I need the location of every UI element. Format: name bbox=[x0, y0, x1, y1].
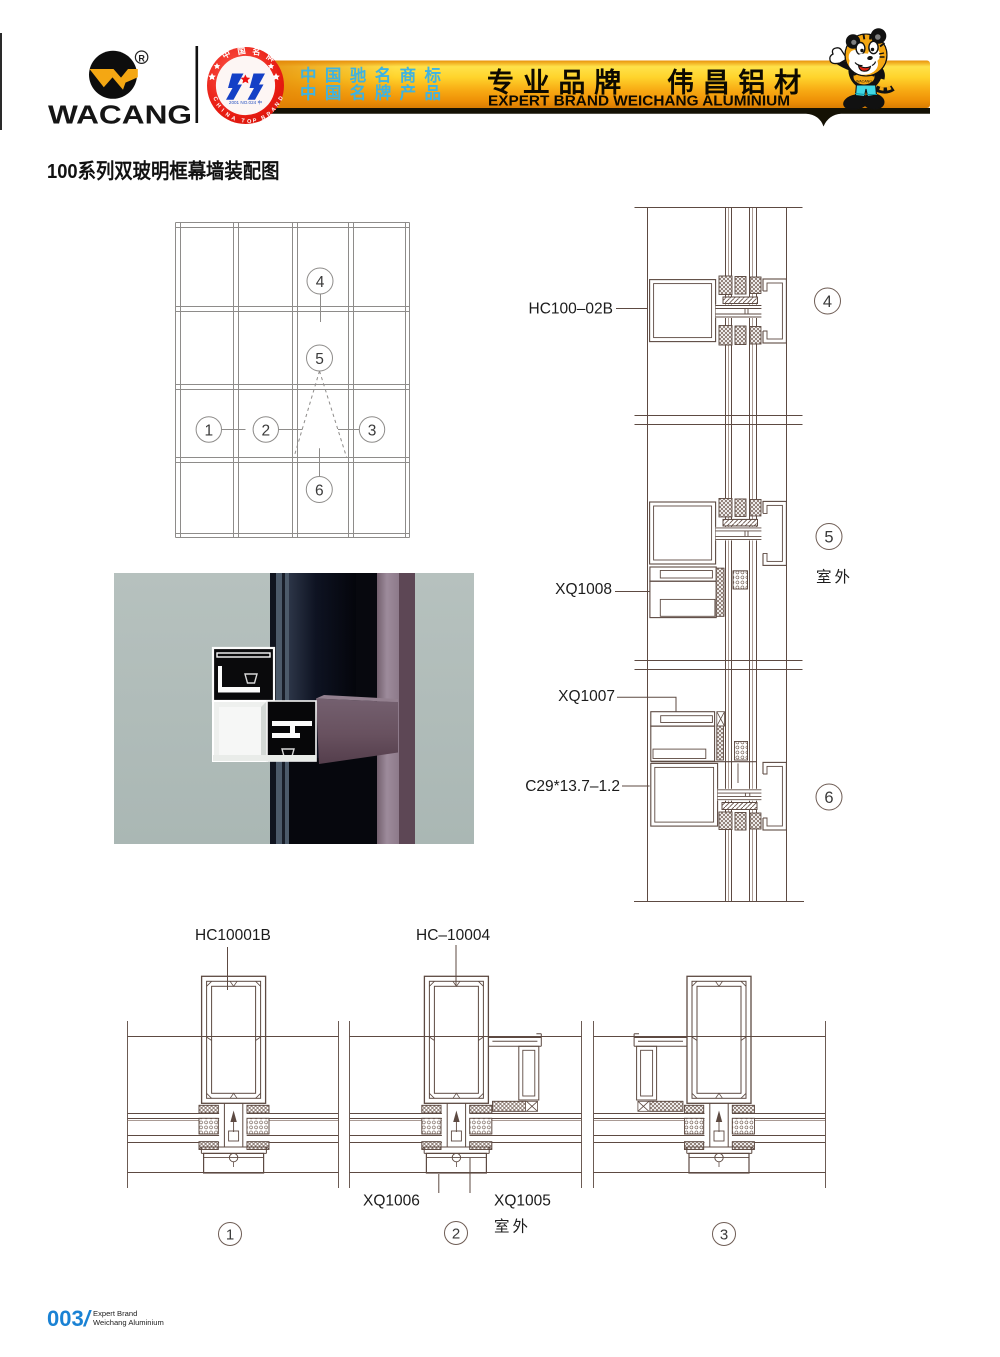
svg-text:HC100–02B: HC100–02B bbox=[529, 301, 613, 318]
svg-text:O: O bbox=[247, 119, 252, 125]
svg-text:室外: 室外 bbox=[816, 568, 853, 586]
svg-text:WACANG: WACANG bbox=[48, 102, 192, 130]
svg-text:6: 6 bbox=[824, 789, 833, 807]
svg-text:HC–10004: HC–10004 bbox=[416, 927, 490, 944]
svg-text:4: 4 bbox=[823, 293, 832, 311]
svg-text:C29*13.7–1.2: C29*13.7–1.2 bbox=[525, 778, 620, 795]
svg-text:国: 国 bbox=[237, 45, 247, 56]
svg-text:WACANG: WACANG bbox=[856, 80, 872, 84]
svg-text:2: 2 bbox=[452, 1226, 460, 1243]
svg-text:HC10001B: HC10001B bbox=[195, 927, 271, 944]
svg-text:1: 1 bbox=[226, 1227, 234, 1244]
svg-text:XQ1007: XQ1007 bbox=[558, 688, 615, 705]
svg-text:室外: 室外 bbox=[494, 1218, 531, 1236]
svg-text:XQ1006: XQ1006 bbox=[363, 1193, 420, 1210]
svg-text:6: 6 bbox=[315, 483, 324, 500]
svg-text:3: 3 bbox=[368, 423, 377, 440]
svg-text:中国名牌产品: 中国名牌产品 bbox=[300, 83, 449, 103]
svg-text:3: 3 bbox=[720, 1227, 728, 1244]
svg-text:1: 1 bbox=[204, 423, 213, 440]
svg-text:2: 2 bbox=[261, 423, 270, 440]
svg-text:5: 5 bbox=[315, 351, 324, 368]
svg-text:EXPERT BRAND WEICHANG ALUMINIU: EXPERT BRAND WEICHANG ALUMINIUM bbox=[488, 94, 790, 110]
svg-text:XQ1005: XQ1005 bbox=[494, 1193, 551, 1210]
svg-text:XQ1008: XQ1008 bbox=[555, 581, 612, 598]
svg-text:5: 5 bbox=[824, 529, 833, 547]
svg-text:中国驰名商标: 中国驰名商标 bbox=[300, 65, 449, 85]
svg-text:R: R bbox=[138, 53, 145, 63]
svg-text:4: 4 bbox=[316, 274, 325, 291]
svg-text:名: 名 bbox=[252, 46, 262, 57]
svg-text:2001 NO.024 中: 2001 NO.024 中 bbox=[229, 99, 263, 106]
